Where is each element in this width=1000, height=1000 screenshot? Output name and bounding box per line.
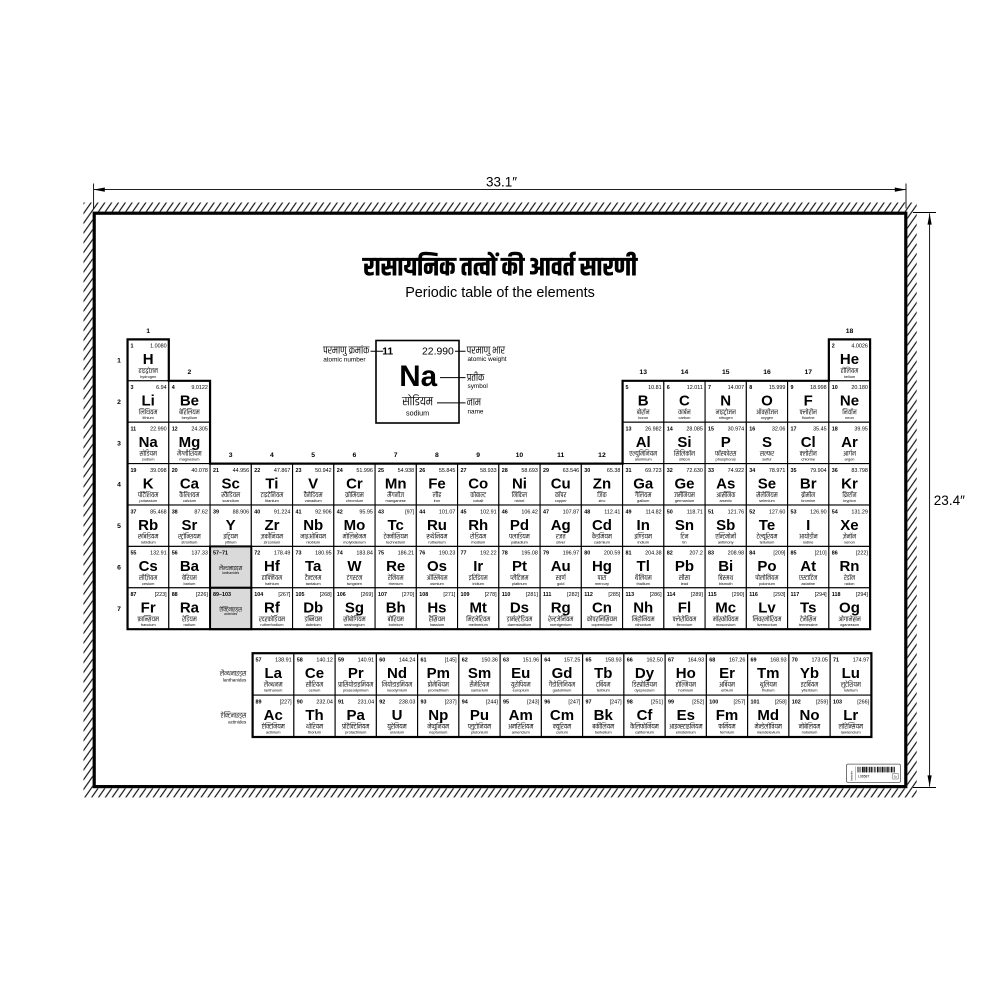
svg-text:84: 84 xyxy=(749,551,755,557)
svg-text:140.12: 140.12 xyxy=(316,658,333,664)
svg-text:Ag: Ag xyxy=(551,517,571,534)
svg-text:darmstadtium: darmstadtium xyxy=(508,622,532,627)
svg-text:39: 39 xyxy=(213,509,219,515)
svg-text:62: 62 xyxy=(462,658,468,664)
svg-text:Au: Au xyxy=(551,558,571,575)
svg-text:121.76: 121.76 xyxy=(728,509,745,515)
svg-text:erbium: erbium xyxy=(721,688,733,693)
svg-text:20.180: 20.180 xyxy=(851,385,868,391)
svg-text:18: 18 xyxy=(846,328,854,335)
svg-text:francium: francium xyxy=(141,622,156,627)
svg-text:Sg: Sg xyxy=(345,600,364,617)
svg-text:183.84: 183.84 xyxy=(356,551,373,557)
svg-text:25: 25 xyxy=(378,468,384,474)
svg-text:plutonium: plutonium xyxy=(471,730,488,735)
svg-text:Po: Po xyxy=(757,558,776,575)
svg-text:80: 80 xyxy=(584,551,590,557)
svg-text:107.87: 107.87 xyxy=(563,509,580,515)
svg-text:12: 12 xyxy=(172,427,178,433)
svg-text:39.098: 39.098 xyxy=(150,468,167,474)
svg-text:22: 22 xyxy=(254,468,260,474)
svg-text:Lr: Lr xyxy=(843,707,858,724)
svg-text:bismuth: bismuth xyxy=(719,581,733,586)
svg-text:103: 103 xyxy=(833,699,842,705)
svg-text:23.4″: 23.4″ xyxy=(934,493,965,508)
svg-text:35.45: 35.45 xyxy=(813,427,827,433)
svg-text:rutherfordium: rutherfordium xyxy=(260,622,283,627)
svg-text:radium: radium xyxy=(183,622,195,627)
svg-text:11: 11 xyxy=(130,427,136,433)
svg-text:actinides: actinides xyxy=(228,720,247,725)
svg-text:Se: Se xyxy=(758,475,776,492)
svg-text:samarium: samarium xyxy=(471,688,488,693)
svg-text:[252]: [252] xyxy=(692,699,704,705)
svg-text:flerovium: flerovium xyxy=(677,622,693,627)
svg-text:3: 3 xyxy=(117,440,121,447)
svg-text:tantalum: tantalum xyxy=(306,581,321,586)
svg-text:thorium: thorium xyxy=(308,730,321,735)
svg-text:173.05: 173.05 xyxy=(811,658,828,664)
svg-text:4: 4 xyxy=(270,452,274,459)
svg-text:[243]: [243] xyxy=(527,699,539,705)
svg-text:[222]: [222] xyxy=(856,551,868,557)
svg-text:9: 9 xyxy=(476,452,480,459)
svg-text:tin: tin xyxy=(682,539,686,544)
svg-text:osmium: osmium xyxy=(430,581,444,586)
svg-text:krypton: krypton xyxy=(843,498,856,503)
svg-text:77: 77 xyxy=(460,551,466,557)
svg-text:27: 27 xyxy=(460,468,466,474)
svg-text:Na: Na xyxy=(399,360,437,393)
svg-text:8: 8 xyxy=(435,452,439,459)
svg-text:47: 47 xyxy=(543,509,549,515)
svg-text:54: 54 xyxy=(832,509,838,515)
svg-text:104: 104 xyxy=(254,592,263,598)
svg-text:138.91: 138.91 xyxy=(275,658,292,664)
svg-text:89–103: 89–103 xyxy=(213,592,231,598)
svg-text:70: 70 xyxy=(792,658,798,664)
svg-text:europium: europium xyxy=(513,688,529,693)
svg-text:157.25: 157.25 xyxy=(564,658,581,664)
svg-text:79.904: 79.904 xyxy=(810,468,827,474)
svg-text:56: 56 xyxy=(172,551,178,557)
svg-text:7: 7 xyxy=(394,452,398,459)
svg-text:bromine: bromine xyxy=(801,498,815,503)
svg-text:140.91: 140.91 xyxy=(358,658,375,664)
svg-text:190.23: 190.23 xyxy=(439,551,456,557)
svg-text:87: 87 xyxy=(130,592,136,598)
svg-text:Tc: Tc xyxy=(387,517,403,534)
svg-text:101: 101 xyxy=(751,699,760,705)
svg-text:61: 61 xyxy=(421,658,427,664)
svg-text:Xe: Xe xyxy=(840,517,858,534)
svg-text:71: 71 xyxy=(833,658,839,664)
svg-text:bohrium: bohrium xyxy=(389,622,403,627)
svg-text:110: 110 xyxy=(502,592,511,598)
svg-text:Kr: Kr xyxy=(841,475,858,492)
svg-text:174.97: 174.97 xyxy=(853,658,870,664)
svg-text:B: B xyxy=(638,393,649,410)
svg-text:promethium: promethium xyxy=(428,688,449,693)
svg-text:Mt: Mt xyxy=(469,600,487,617)
svg-text:gold: gold xyxy=(557,581,564,586)
svg-text:Ga: Ga xyxy=(633,475,654,492)
svg-text:Pd: Pd xyxy=(510,517,529,534)
svg-text:iodine: iodine xyxy=(803,539,813,544)
svg-text:L0658T: L0658T xyxy=(858,775,870,779)
svg-text:Ni: Ni xyxy=(512,475,527,492)
svg-text:Pm: Pm xyxy=(427,665,450,682)
svg-text:gallium: gallium xyxy=(637,498,649,503)
svg-text:88: 88 xyxy=(172,592,178,598)
svg-text:In: In xyxy=(637,517,650,534)
svg-text:yttrium: yttrium xyxy=(225,539,237,544)
svg-text:palladium: palladium xyxy=(511,539,528,544)
svg-text:radon: radon xyxy=(845,581,855,586)
svg-text:102: 102 xyxy=(792,699,801,705)
svg-text:carbon: carbon xyxy=(679,415,691,420)
svg-text:Ac: Ac xyxy=(264,707,283,724)
svg-text:cesium: cesium xyxy=(142,581,154,586)
svg-text:Cl: Cl xyxy=(801,434,816,451)
svg-text:23: 23 xyxy=(295,468,301,474)
svg-text:[289]: [289] xyxy=(691,592,703,598)
svg-text:92: 92 xyxy=(379,699,385,705)
svg-text:Cu: Cu xyxy=(551,475,571,492)
svg-text:neptunium: neptunium xyxy=(429,730,447,735)
svg-text:Md: Md xyxy=(757,707,779,724)
svg-text:Pa: Pa xyxy=(347,707,366,724)
svg-text:79: 79 xyxy=(543,551,549,557)
svg-text:[247]: [247] xyxy=(568,699,580,705)
svg-text:60: 60 xyxy=(379,658,385,664)
svg-text:10: 10 xyxy=(832,385,838,391)
svg-text:15: 15 xyxy=(722,369,730,376)
svg-text:Th: Th xyxy=(305,707,323,724)
svg-text:[226]: [226] xyxy=(196,592,208,598)
svg-text:niobium: niobium xyxy=(306,539,320,544)
svg-text:Sm: Sm xyxy=(468,665,491,682)
svg-text:indium: indium xyxy=(637,539,648,544)
svg-text:cobalt: cobalt xyxy=(473,498,484,503)
svg-text:Cd: Cd xyxy=(592,517,612,534)
svg-text:58.933: 58.933 xyxy=(480,468,497,474)
svg-text:178.49: 178.49 xyxy=(274,551,291,557)
svg-text:[270]: [270] xyxy=(402,592,414,598)
svg-text:Yb: Yb xyxy=(800,665,819,682)
svg-text:tungsten: tungsten xyxy=(347,581,362,586)
svg-text:200.59: 200.59 xyxy=(604,551,621,557)
svg-text:Tl: Tl xyxy=(637,558,650,575)
svg-text:53: 53 xyxy=(791,509,797,515)
svg-text:terbium: terbium xyxy=(597,688,610,693)
svg-text:dubnium: dubnium xyxy=(306,622,321,627)
svg-text:antimony: antimony xyxy=(718,539,734,544)
svg-text:162.50: 162.50 xyxy=(646,658,663,664)
svg-text:31: 31 xyxy=(625,468,631,474)
svg-text:9.0122: 9.0122 xyxy=(191,385,208,391)
svg-text:actinium: actinium xyxy=(266,730,281,735)
svg-text:204.38: 204.38 xyxy=(645,551,662,557)
svg-text:[281]: [281] xyxy=(526,592,538,598)
svg-text:selenium: selenium xyxy=(759,498,775,503)
svg-text:99: 99 xyxy=(668,699,674,705)
svg-text:arsenic: arsenic xyxy=(719,498,732,503)
svg-text:Y: Y xyxy=(226,517,236,534)
svg-text:1: 1 xyxy=(117,358,121,365)
svg-text:14.007: 14.007 xyxy=(728,385,745,391)
svg-text:Re: Re xyxy=(386,558,405,575)
svg-text:54.938: 54.938 xyxy=(398,468,415,474)
svg-text:rhenium: rhenium xyxy=(389,581,403,586)
svg-text:Na: Na xyxy=(139,434,159,451)
svg-text:Mn: Mn xyxy=(385,475,407,492)
svg-text:[290]: [290] xyxy=(732,592,744,598)
svg-text:Ti: Ti xyxy=(265,475,278,492)
svg-text:91: 91 xyxy=(338,699,344,705)
svg-text:bestelnr.: bestelnr. xyxy=(849,770,853,780)
svg-text:207.2: 207.2 xyxy=(689,551,703,557)
svg-text:[209]: [209] xyxy=(773,551,785,557)
svg-text:30: 30 xyxy=(584,468,590,474)
svg-text:atomic weight: atomic weight xyxy=(468,356,507,363)
svg-text:6: 6 xyxy=(667,385,670,391)
svg-text:lead: lead xyxy=(681,581,688,586)
svg-text:Hf: Hf xyxy=(264,558,281,575)
svg-text:rhodium: rhodium xyxy=(471,539,485,544)
svg-text:78: 78 xyxy=(502,551,508,557)
svg-text:Periodic table of the elements: Periodic table of the elements xyxy=(405,285,595,301)
svg-text:Tb: Tb xyxy=(594,665,612,682)
svg-text:Ra: Ra xyxy=(180,600,200,617)
svg-text:lanthanum: lanthanum xyxy=(264,688,282,693)
svg-text:131.29: 131.29 xyxy=(851,509,868,515)
svg-text:thulium: thulium xyxy=(762,688,775,693)
svg-text:[266]: [266] xyxy=(857,699,869,705)
svg-text:Cn: Cn xyxy=(592,600,612,617)
svg-text:Lv: Lv xyxy=(758,600,776,617)
svg-text:Rf: Rf xyxy=(264,600,281,617)
svg-text:[294]: [294] xyxy=(856,592,868,598)
svg-text:74.922: 74.922 xyxy=(728,468,745,474)
svg-text:I: I xyxy=(806,517,810,534)
svg-text:6: 6 xyxy=(353,452,357,459)
svg-text:Zr: Zr xyxy=(264,517,279,534)
svg-text:dysprosium: dysprosium xyxy=(635,688,655,693)
svg-text:67: 67 xyxy=(668,658,674,664)
svg-text:57: 57 xyxy=(256,658,262,664)
svg-text:37: 37 xyxy=(130,509,136,515)
svg-text:50.942: 50.942 xyxy=(315,468,332,474)
svg-text:69.723: 69.723 xyxy=(645,468,662,474)
svg-text:copper: copper xyxy=(555,498,568,503)
svg-text:13: 13 xyxy=(639,369,647,376)
svg-text:technetium: technetium xyxy=(386,539,405,544)
svg-text:actinides: actinides xyxy=(224,612,237,616)
svg-text:livermorium: livermorium xyxy=(757,622,777,627)
svg-text:protactinium: protactinium xyxy=(345,730,366,735)
svg-text:231.04: 231.04 xyxy=(358,699,375,705)
svg-text:C: C xyxy=(679,393,690,410)
svg-text:nihonium: nihonium xyxy=(635,622,651,627)
svg-text:51.996: 51.996 xyxy=(356,468,373,474)
svg-text:Pu: Pu xyxy=(470,707,489,724)
svg-text:3: 3 xyxy=(229,452,233,459)
svg-text:83.798: 83.798 xyxy=(851,468,868,474)
svg-text:Te: Te xyxy=(759,517,775,534)
svg-text:97: 97 xyxy=(586,699,592,705)
svg-text:22.990: 22.990 xyxy=(422,347,454,358)
svg-text:11: 11 xyxy=(382,347,393,358)
svg-text:Rg: Rg xyxy=(551,600,571,617)
svg-text:Fr: Fr xyxy=(141,600,156,617)
svg-text:[97]: [97] xyxy=(405,509,414,515)
svg-text:116: 116 xyxy=(749,592,758,598)
svg-text:17: 17 xyxy=(791,427,797,433)
svg-text:name: name xyxy=(468,408,484,415)
svg-text:69: 69 xyxy=(751,658,757,664)
svg-text:24: 24 xyxy=(337,468,343,474)
svg-text:44: 44 xyxy=(419,509,425,515)
svg-text:26.982: 26.982 xyxy=(645,427,662,433)
svg-text:164.93: 164.93 xyxy=(688,658,705,664)
svg-text:Ba: Ba xyxy=(180,558,200,575)
svg-text:At: At xyxy=(800,558,816,575)
svg-text:18.998: 18.998 xyxy=(810,385,827,391)
svg-text:64: 64 xyxy=(544,658,550,664)
svg-text:112: 112 xyxy=(584,592,593,598)
svg-text:lanthanides: lanthanides xyxy=(223,678,247,683)
svg-text:Ge: Ge xyxy=(674,475,694,492)
svg-text:106.42: 106.42 xyxy=(521,509,538,515)
svg-text:55.845: 55.845 xyxy=(439,468,456,474)
svg-text:Sr: Sr xyxy=(182,517,198,534)
svg-text:[269]: [269] xyxy=(361,592,373,598)
svg-text:7: 7 xyxy=(117,606,121,613)
svg-text:germanium: germanium xyxy=(675,498,694,503)
svg-text:11: 11 xyxy=(557,452,564,459)
svg-text:Np: Np xyxy=(428,707,448,724)
svg-text:scandium: scandium xyxy=(222,498,239,503)
svg-text:150.36: 150.36 xyxy=(481,658,498,664)
svg-text:6.94: 6.94 xyxy=(156,385,167,391)
svg-text:49: 49 xyxy=(625,509,631,515)
svg-text:zinc: zinc xyxy=(598,498,605,503)
svg-text:118.71: 118.71 xyxy=(687,509,703,515)
svg-text:195.08: 195.08 xyxy=(521,551,538,557)
svg-text:5: 5 xyxy=(311,452,315,459)
svg-text:neodymium: neodymium xyxy=(387,688,407,693)
svg-text:moscovium: moscovium xyxy=(716,622,736,627)
svg-text:81: 81 xyxy=(625,551,631,557)
svg-text:F: F xyxy=(804,393,813,410)
svg-text:mendelevium: mendelevium xyxy=(757,730,780,735)
svg-text:[267]: [267] xyxy=(278,592,290,598)
svg-text:Li: Li xyxy=(142,393,155,410)
svg-text:91.224: 91.224 xyxy=(274,509,291,515)
svg-text:24.305: 24.305 xyxy=(191,427,208,433)
svg-text:K: K xyxy=(143,475,154,492)
svg-text:65: 65 xyxy=(586,658,592,664)
svg-text:Db: Db xyxy=(303,600,323,617)
svg-text:[237]: [237] xyxy=(445,699,457,705)
svg-text:Tm: Tm xyxy=(757,665,780,682)
svg-text:14: 14 xyxy=(667,427,673,433)
svg-text:55: 55 xyxy=(130,551,136,557)
svg-text:144.24: 144.24 xyxy=(399,658,416,664)
svg-text:Co: Co xyxy=(468,475,488,492)
svg-text:[293]: [293] xyxy=(773,592,785,598)
svg-text:85: 85 xyxy=(791,551,797,557)
svg-text:praseodymium: praseodymium xyxy=(343,688,369,693)
svg-text:Hs: Hs xyxy=(427,600,446,617)
svg-text:Pr: Pr xyxy=(348,665,364,682)
svg-text:65.38: 65.38 xyxy=(607,468,621,474)
svg-text:4: 4 xyxy=(172,385,175,391)
svg-text:Ta: Ta xyxy=(305,558,322,575)
svg-text:208.98: 208.98 xyxy=(728,551,745,557)
svg-text:xenon: xenon xyxy=(844,539,855,544)
svg-text:lutetium: lutetium xyxy=(844,688,858,693)
svg-text:nobelium: nobelium xyxy=(802,730,818,735)
svg-text:copernicium: copernicium xyxy=(591,622,612,627)
svg-text:15: 15 xyxy=(708,427,714,433)
svg-text:Pb: Pb xyxy=(675,558,694,575)
svg-text:[268]: [268] xyxy=(320,592,332,598)
svg-text:33.1″: 33.1″ xyxy=(486,174,517,189)
svg-text:meitnerium: meitnerium xyxy=(469,622,488,627)
svg-text:No: No xyxy=(800,707,820,724)
svg-text:[210]: [210] xyxy=(815,551,827,557)
svg-text:Bh: Bh xyxy=(386,600,406,617)
svg-text:82: 82 xyxy=(667,551,673,557)
svg-text:silicon: silicon xyxy=(679,457,690,462)
svg-text:H: H xyxy=(143,351,154,368)
svg-text:barium: barium xyxy=(183,581,195,586)
svg-text:lawrencium: lawrencium xyxy=(841,730,861,735)
svg-text:phosphorus: phosphorus xyxy=(716,457,736,462)
svg-text:8: 8 xyxy=(749,385,752,391)
svg-text:52: 52 xyxy=(749,509,755,515)
svg-text:zirconium: zirconium xyxy=(264,539,281,544)
svg-text:Fe: Fe xyxy=(428,475,446,492)
svg-text:32: 32 xyxy=(667,468,673,474)
svg-text:2: 2 xyxy=(117,399,121,406)
svg-text:158.93: 158.93 xyxy=(605,658,622,664)
svg-text:16: 16 xyxy=(749,427,755,433)
svg-text:[259]: [259] xyxy=(816,699,828,705)
svg-text:Zn: Zn xyxy=(593,475,611,492)
svg-text:oganesson: oganesson xyxy=(840,622,859,627)
svg-text:2: 2 xyxy=(832,344,835,350)
svg-text:34: 34 xyxy=(749,468,755,474)
svg-text:He: He xyxy=(840,351,859,368)
svg-text:V: V xyxy=(308,475,318,492)
svg-text:boron: boron xyxy=(638,415,648,420)
svg-text:95.95: 95.95 xyxy=(359,509,373,515)
svg-text:californium: californium xyxy=(635,730,654,735)
svg-text:[244]: [244] xyxy=(486,699,498,705)
svg-text:ruthenium: ruthenium xyxy=(428,539,445,544)
svg-text:83: 83 xyxy=(708,551,714,557)
svg-text:29: 29 xyxy=(543,468,549,474)
svg-text:42: 42 xyxy=(337,509,343,515)
svg-text:Cf: Cf xyxy=(637,707,654,724)
svg-text:22.990: 22.990 xyxy=(150,427,167,433)
svg-text:argon: argon xyxy=(845,457,855,462)
svg-text:Cs: Cs xyxy=(139,558,158,575)
svg-text:potassium: potassium xyxy=(139,498,157,503)
